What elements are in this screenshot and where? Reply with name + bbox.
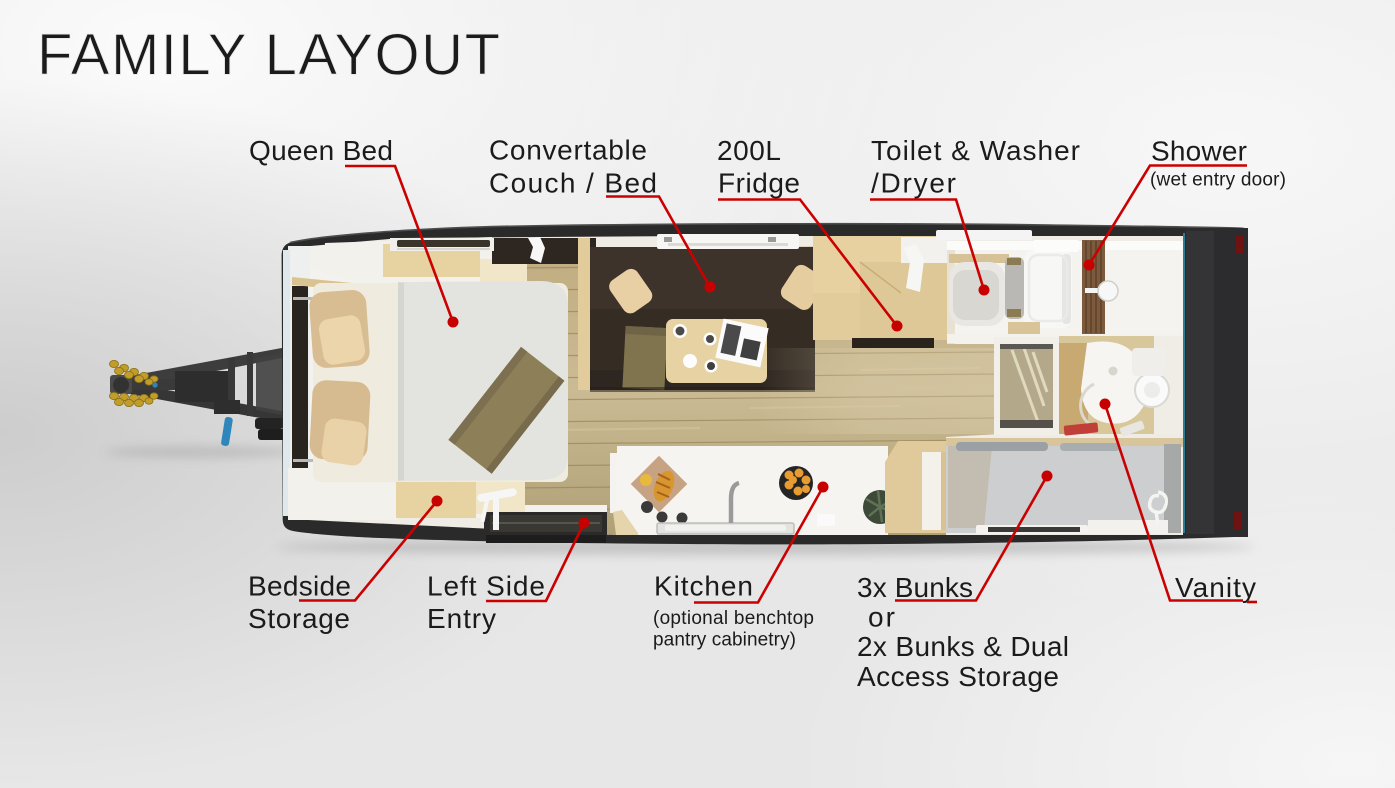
svg-text:3x Bunks: 3x Bunks [857, 572, 973, 603]
svg-text:Queen Bed: Queen Bed [249, 135, 393, 166]
svg-text:2x Bunks & Dual: 2x Bunks & Dual [857, 631, 1069, 662]
svg-text:(optional benchtop: (optional benchtop [653, 608, 814, 629]
svg-text:Fridge: Fridge [718, 168, 800, 199]
svg-text:or: or [868, 602, 895, 633]
svg-text:Toilet & Washer: Toilet & Washer [871, 135, 1080, 166]
svg-text:Entry: Entry [427, 603, 496, 634]
svg-text:pantry cabinetry): pantry cabinetry) [653, 630, 796, 651]
svg-text:Left Side: Left Side [427, 571, 545, 602]
svg-text:Vanity: Vanity [1175, 572, 1256, 603]
svg-text:(wet entry door): (wet entry door) [1150, 170, 1286, 191]
svg-text:/Dryer: /Dryer [871, 168, 956, 199]
svg-text:Bedside: Bedside [248, 571, 351, 602]
svg-text:Couch / Bed: Couch / Bed [489, 168, 657, 199]
svg-text:Storage: Storage [248, 603, 350, 634]
svg-text:Convertable: Convertable [489, 135, 647, 166]
svg-text:Access Storage: Access Storage [857, 661, 1059, 692]
svg-text:Shower: Shower [1151, 136, 1247, 167]
svg-text:200L: 200L [717, 135, 781, 166]
svg-text:Kitchen: Kitchen [654, 571, 753, 602]
svg-text:FAMILY LAYOUT: FAMILY LAYOUT [37, 23, 506, 88]
